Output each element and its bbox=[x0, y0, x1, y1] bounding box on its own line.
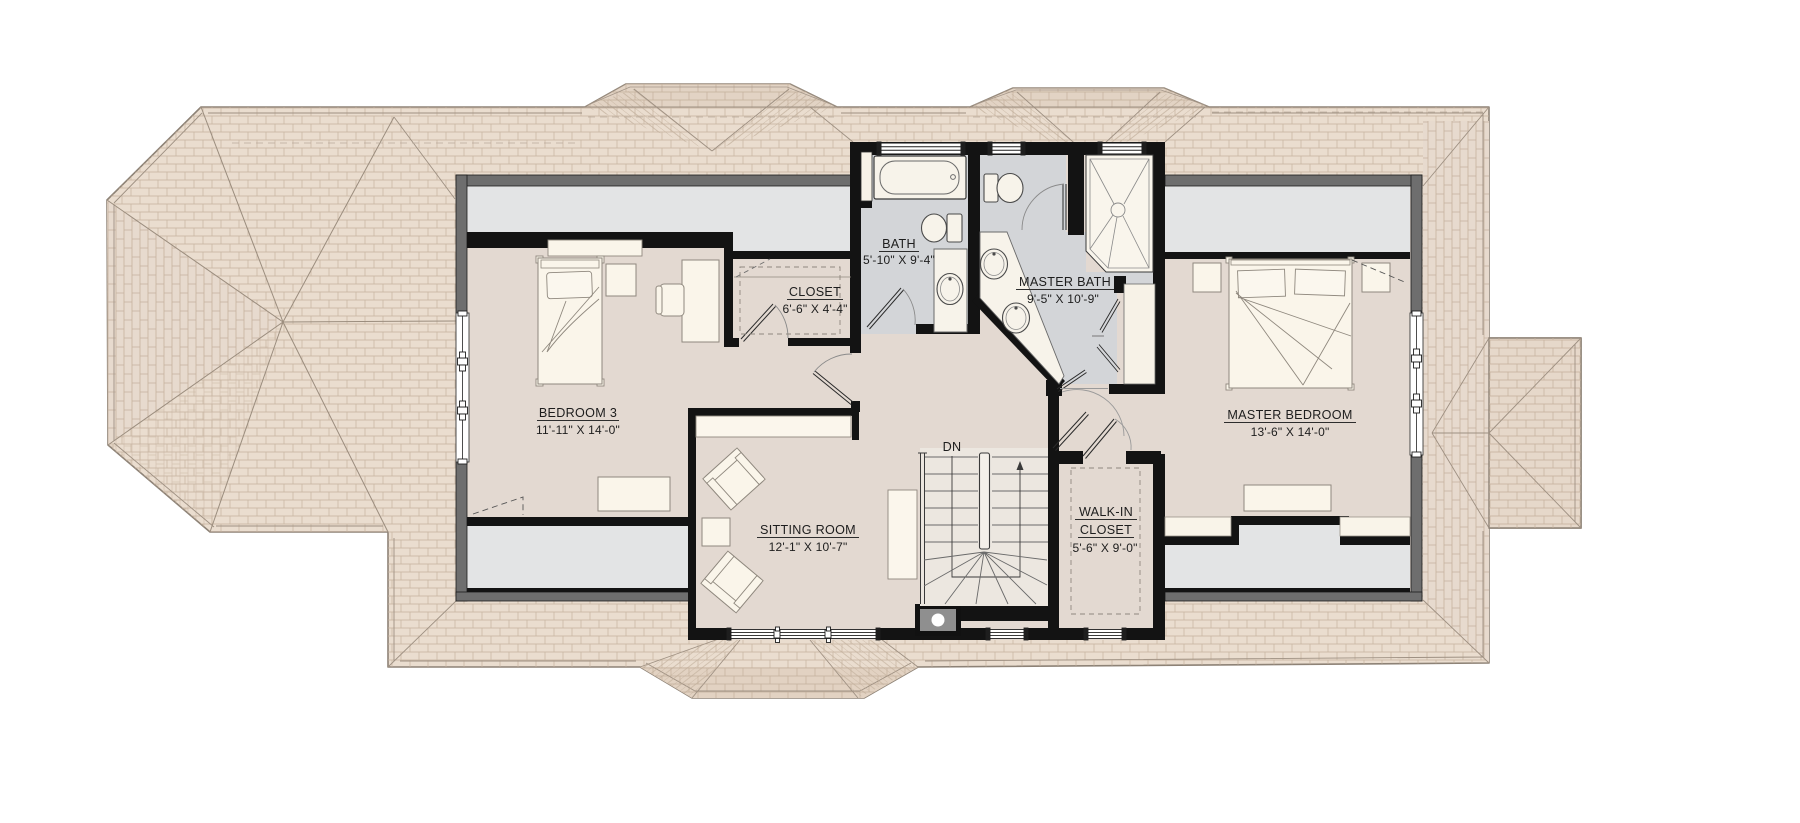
svg-text:BATH: BATH bbox=[882, 237, 916, 251]
svg-text:MASTER BATH: MASTER BATH bbox=[1019, 275, 1111, 289]
svg-text:5'-10" X 9'-4": 5'-10" X 9'-4" bbox=[863, 253, 935, 267]
svg-text:SITTING ROOM: SITTING ROOM bbox=[760, 523, 856, 537]
svg-text:MASTER BEDROOM: MASTER BEDROOM bbox=[1227, 408, 1352, 422]
svg-text:12'-1" X 10'-7": 12'-1" X 10'-7" bbox=[769, 540, 848, 554]
svg-text:5'-6" X 9'-0": 5'-6" X 9'-0" bbox=[1072, 541, 1137, 555]
svg-text:13'-6" X 14'-0": 13'-6" X 14'-0" bbox=[1251, 425, 1330, 439]
svg-text:DN: DN bbox=[943, 440, 962, 454]
svg-text:9'-5" X 10'-9": 9'-5" X 10'-9" bbox=[1027, 292, 1099, 306]
svg-text:BEDROOM 3: BEDROOM 3 bbox=[539, 406, 617, 420]
svg-text:WALK-IN: WALK-IN bbox=[1079, 505, 1133, 519]
svg-text:11'-11" X 14'-0": 11'-11" X 14'-0" bbox=[536, 423, 620, 437]
svg-text:6'-6" X 4'-4": 6'-6" X 4'-4" bbox=[782, 302, 847, 316]
svg-text:CLOSET: CLOSET bbox=[1080, 523, 1132, 537]
svg-text:CLOSET: CLOSET bbox=[789, 285, 841, 299]
